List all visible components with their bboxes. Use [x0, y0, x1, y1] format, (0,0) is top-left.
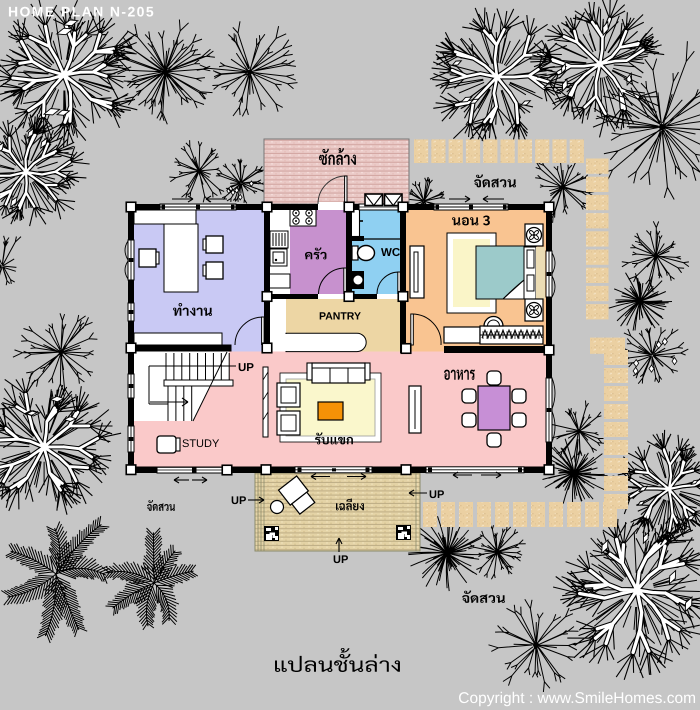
svg-text:Copyright : www.SmileHomes.com: Copyright : www.SmileHomes.com: [458, 690, 696, 707]
svg-text:HOME PLAN N-205: HOME PLAN N-205: [8, 4, 155, 20]
svg-text:PANTRY: PANTRY: [319, 311, 361, 323]
svg-text:UP: UP: [238, 362, 254, 374]
svg-text:STUDY: STUDY: [182, 438, 220, 450]
svg-text:UP: UP: [333, 554, 348, 566]
svg-text:UP: UP: [429, 489, 444, 501]
svg-text:WC: WC: [381, 247, 400, 259]
svg-text:UP: UP: [231, 495, 246, 507]
